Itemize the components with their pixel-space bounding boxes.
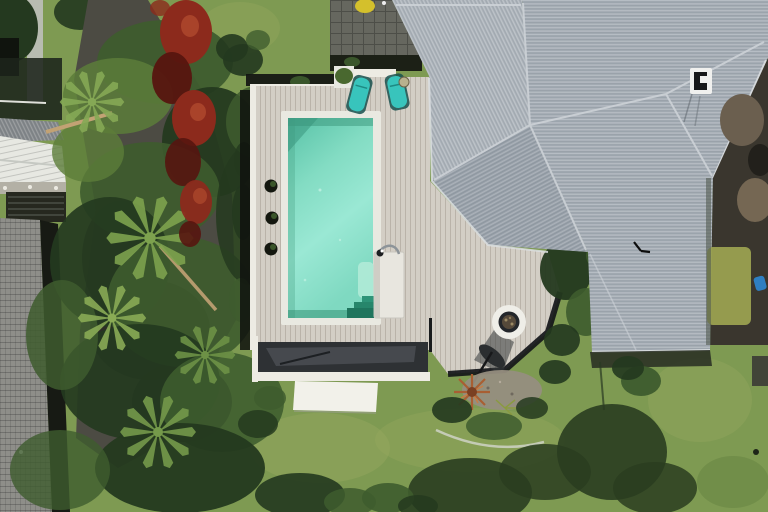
- outdoor-pole: [429, 318, 432, 352]
- pool-step-unit: [374, 246, 404, 318]
- grass-patch: [707, 247, 751, 325]
- concrete-pad: [293, 381, 378, 412]
- side-table: [399, 77, 409, 87]
- shadowed-yard: [0, 58, 62, 120]
- planter-plant: [335, 68, 353, 84]
- eave-shadow: [590, 350, 712, 368]
- aerial-photo: [0, 0, 768, 512]
